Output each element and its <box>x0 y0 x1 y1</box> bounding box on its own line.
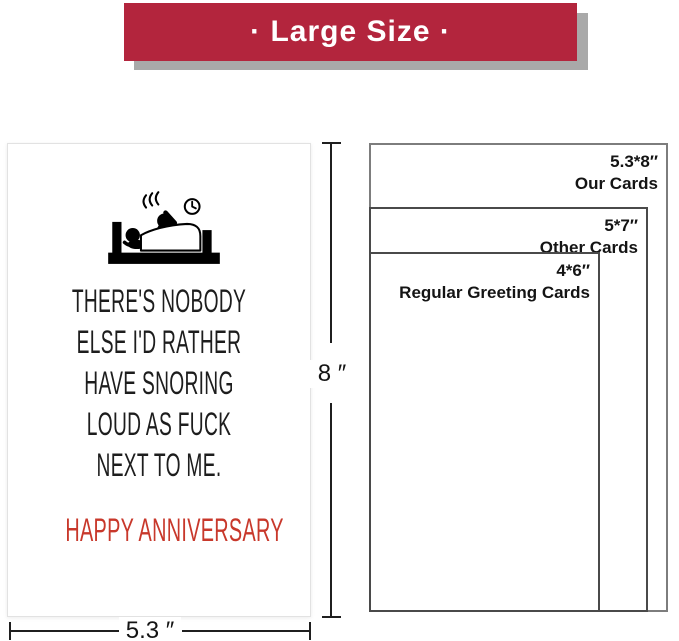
message-line: LOUD AS FUCK <box>68 404 249 445</box>
large-size-banner: · Large Size · <box>124 3 577 61</box>
banner-label: · Large Size · <box>250 15 451 49</box>
size-value: 5*7″ <box>540 215 638 237</box>
size-rect-regular-greeting-cards: 4*6″ Regular Greeting Cards <box>369 252 600 612</box>
bed-snoring-illustration <box>105 184 223 268</box>
message-line: NEXT TO ME. <box>68 445 249 486</box>
size-tag-our-cards: 5.3*8″ Our Cards <box>575 151 658 195</box>
size-value: 4*6″ <box>399 260 590 282</box>
product-image-canvas: · Large Size · <box>0 0 679 641</box>
message-line: ELSE I'D RATHER <box>68 322 249 363</box>
blanket-shape <box>141 224 200 251</box>
height-dimension-label: 8 ″ <box>309 360 355 388</box>
dimension-line-lower <box>330 403 332 616</box>
snore-marks-icon <box>144 192 159 207</box>
dimension-tick-right <box>309 622 311 640</box>
dimension-line-upper <box>330 144 332 343</box>
width-dimension-label: 5.3 ″ <box>119 617 181 641</box>
size-tag-regular-greeting-cards: 4*6″ Regular Greeting Cards <box>399 260 590 304</box>
message-line: HAVE SNORING <box>68 363 249 404</box>
dimension-line-right <box>182 630 309 632</box>
clock-icon <box>185 199 200 214</box>
card-message: THERE'S NOBODY ELSE I'D RATHER HAVE SNOR… <box>8 281 310 486</box>
card-type-label: Our Cards <box>575 173 658 195</box>
card-greeting: HAPPY ANNIVERSARY <box>65 510 252 550</box>
card-type-label: Regular Greeting Cards <box>399 282 590 304</box>
anniversary-card: THERE'S NOBODY ELSE I'D RATHER HAVE SNOR… <box>7 143 311 617</box>
dimension-line-left <box>11 630 119 632</box>
dimension-tick-bottom <box>322 616 341 618</box>
size-value: 5.3*8″ <box>575 151 658 173</box>
message-line: THERE'S NOBODY <box>68 281 249 322</box>
